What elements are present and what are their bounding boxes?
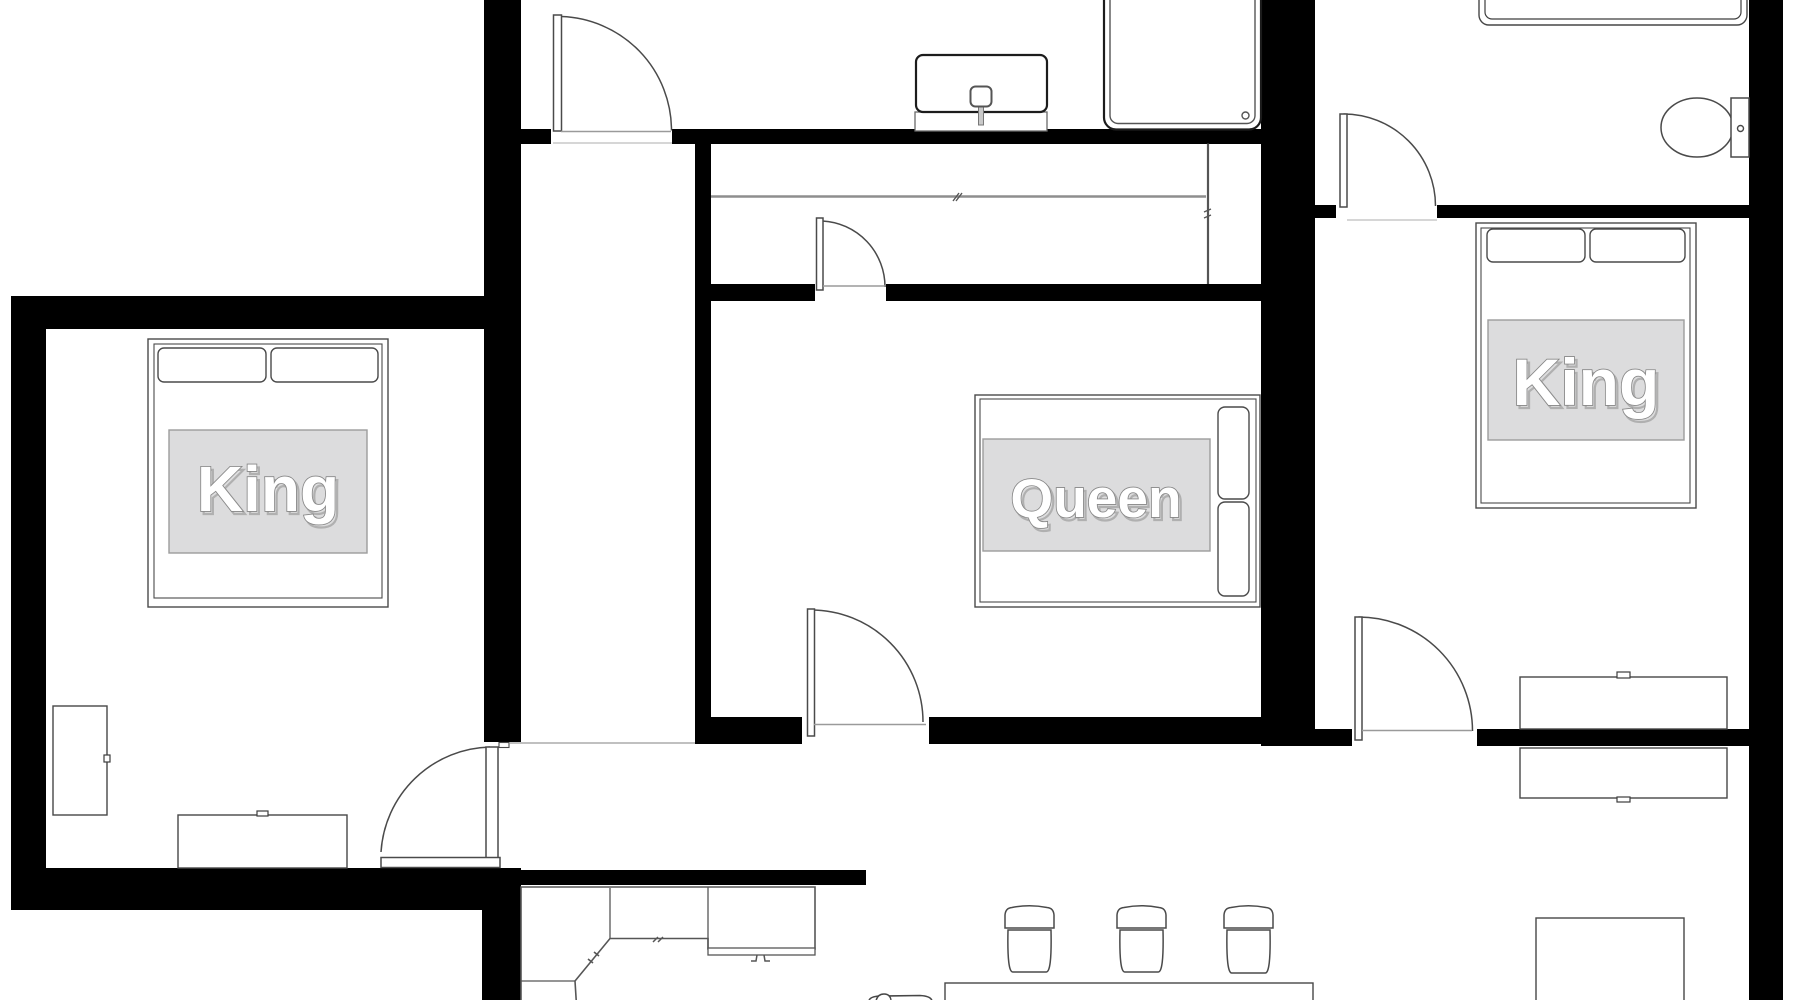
svg-text:King: King (197, 453, 339, 525)
svg-text:King: King (1513, 345, 1660, 419)
svg-text:Queen: Queen (1010, 467, 1181, 529)
